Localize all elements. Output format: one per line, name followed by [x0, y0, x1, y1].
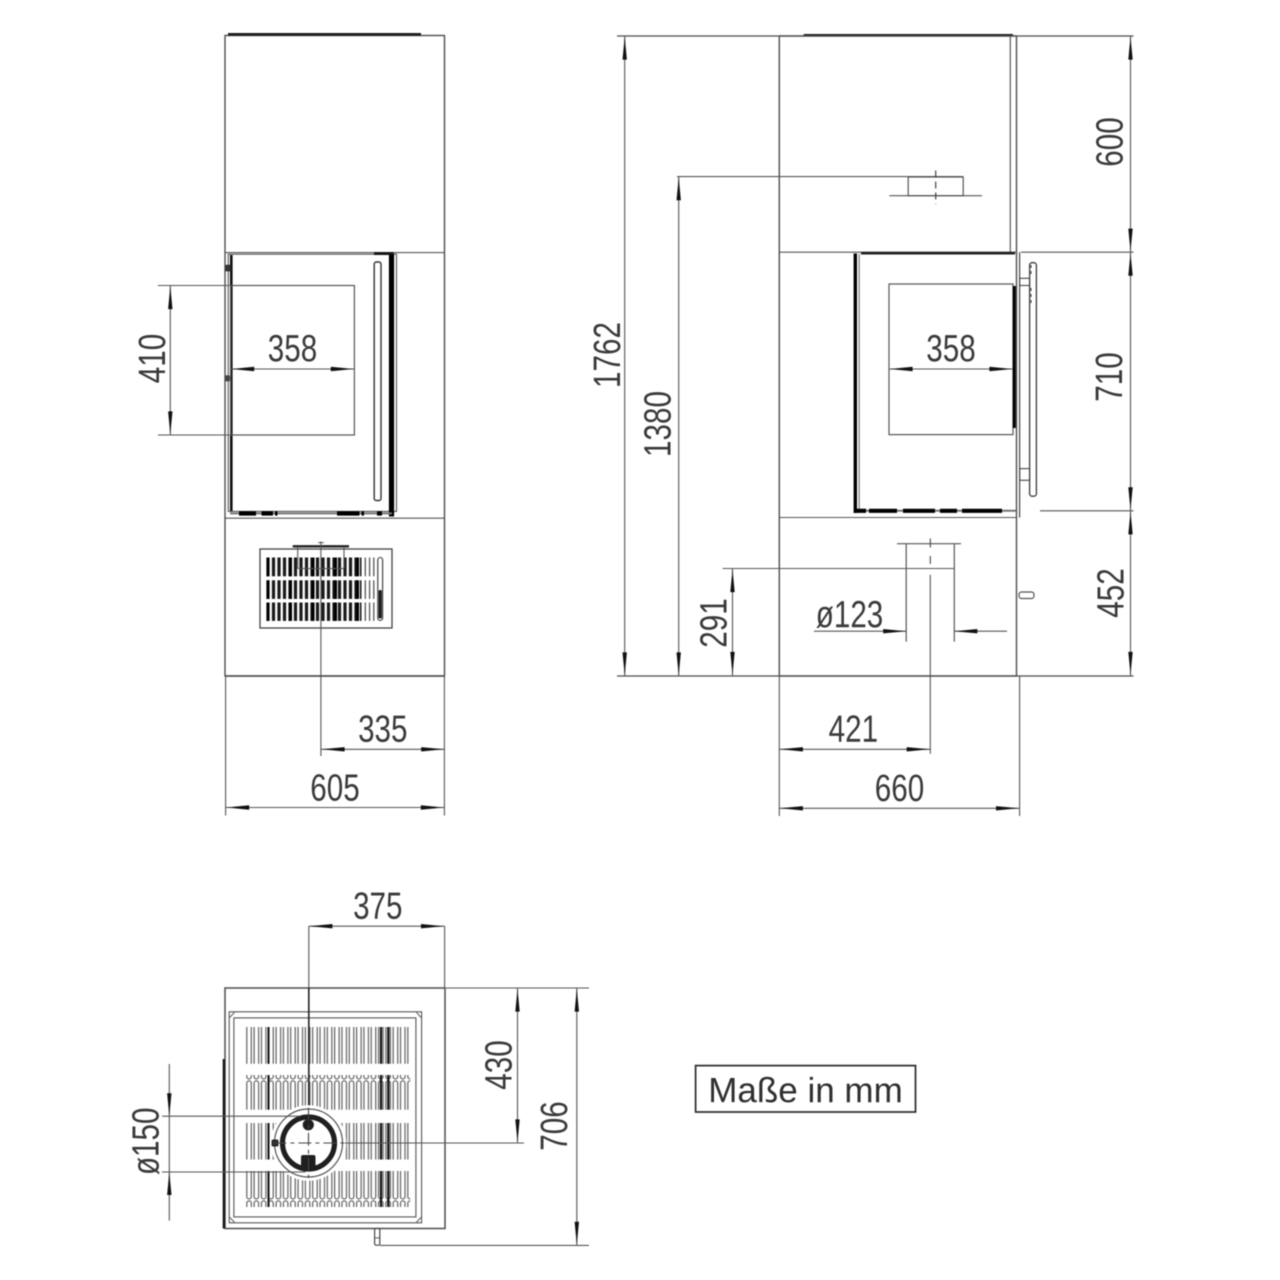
svg-text:600: 600: [1089, 117, 1131, 166]
svg-text:421: 421: [829, 708, 878, 750]
svg-text:605: 605: [310, 767, 359, 809]
svg-text:ø123: ø123: [816, 594, 884, 636]
svg-text:335: 335: [358, 708, 407, 750]
svg-text:358: 358: [926, 328, 975, 370]
svg-text:410: 410: [132, 334, 174, 383]
svg-text:1762: 1762: [587, 322, 629, 388]
svg-text:358: 358: [268, 328, 317, 370]
svg-text:375: 375: [353, 885, 402, 927]
svg-text:430: 430: [478, 1040, 520, 1089]
svg-text:291: 291: [693, 598, 735, 647]
svg-text:Maße in mm: Maße in mm: [708, 1071, 902, 1110]
svg-text:1380: 1380: [637, 391, 679, 457]
svg-text:452: 452: [1090, 568, 1132, 617]
svg-text:660: 660: [875, 768, 924, 810]
svg-text:ø150: ø150: [125, 1108, 167, 1176]
svg-text:710: 710: [1089, 352, 1131, 401]
svg-text:706: 706: [534, 1101, 576, 1150]
